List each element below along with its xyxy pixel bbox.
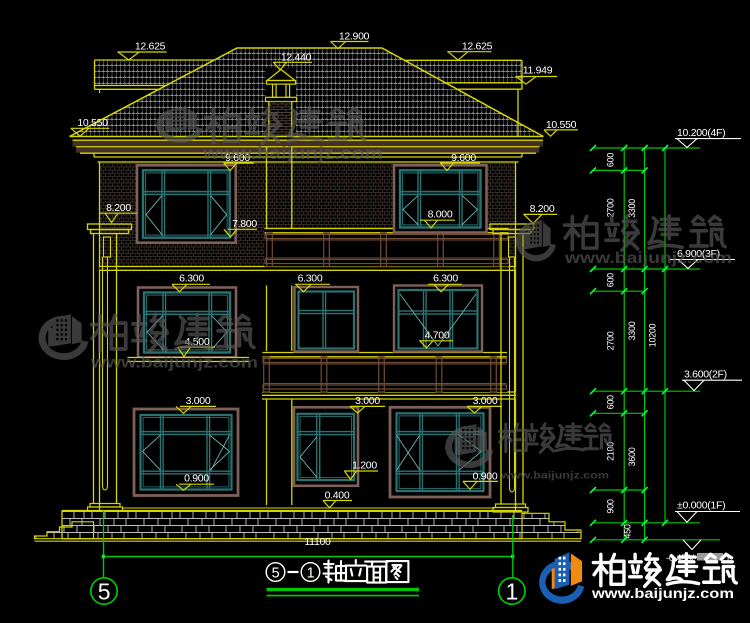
svg-text:8.000: 8.000 (428, 209, 453, 221)
svg-text:6.300: 6.300 (433, 273, 458, 285)
svg-text:10.200(4F): 10.200(4F) (677, 127, 725, 139)
svg-text:8.200: 8.200 (530, 203, 555, 215)
svg-text:www.baijunjz.com: www.baijunjz.com (591, 586, 734, 601)
svg-text:3.000: 3.000 (473, 395, 498, 407)
svg-text:10.550: 10.550 (546, 119, 577, 131)
svg-text:1: 1 (506, 578, 519, 604)
svg-text:450: 450 (623, 524, 633, 538)
svg-text:6.300: 6.300 (179, 273, 204, 285)
svg-text:10.550: 10.550 (77, 117, 108, 129)
svg-text:0.900: 0.900 (184, 473, 209, 485)
svg-text:12.900: 12.900 (339, 31, 370, 43)
svg-text:11100: 11100 (304, 536, 331, 548)
svg-text:5: 5 (98, 578, 111, 604)
svg-text:900: 900 (606, 499, 616, 513)
svg-text:12.625: 12.625 (462, 41, 493, 53)
svg-text:1: 1 (307, 565, 315, 581)
svg-text:3.000: 3.000 (355, 395, 380, 407)
svg-text:6.300: 6.300 (298, 273, 323, 285)
svg-text:8.200: 8.200 (106, 202, 131, 214)
svg-text:12.440: 12.440 (281, 51, 312, 63)
svg-text:11.949: 11.949 (523, 65, 553, 77)
svg-text:600: 600 (606, 395, 616, 409)
svg-text:0.900: 0.900 (473, 470, 498, 482)
svg-text:3600: 3600 (627, 447, 637, 466)
svg-text:2700: 2700 (606, 331, 616, 350)
svg-text:www.baijunjz.com: www.baijunjz.com (202, 143, 383, 163)
svg-text:www.baijunjz.com: www.baijunjz.com (500, 471, 609, 482)
svg-text:2700: 2700 (606, 198, 616, 217)
svg-text:5: 5 (272, 565, 280, 581)
svg-text:3.000: 3.000 (186, 395, 211, 407)
svg-text:0.400: 0.400 (325, 489, 350, 501)
svg-text:1.200: 1.200 (352, 459, 377, 471)
svg-text:12.625: 12.625 (135, 41, 166, 53)
svg-text:9.600: 9.600 (451, 152, 476, 164)
svg-text:www.baijunjz.com: www.baijunjz.com (90, 354, 258, 372)
svg-text:www.baijunjz.com: www.baijunjz.com (564, 249, 732, 267)
svg-text:600: 600 (606, 273, 616, 287)
svg-text:10200: 10200 (647, 323, 657, 347)
svg-text:±0.000(1F): ±0.000(1F) (677, 500, 725, 512)
svg-text:4.700: 4.700 (425, 330, 450, 342)
svg-text:7.800: 7.800 (232, 218, 257, 230)
svg-text:3.600(2F): 3.600(2F) (684, 368, 727, 380)
svg-text:600: 600 (606, 153, 616, 167)
svg-text:3300: 3300 (627, 321, 637, 340)
